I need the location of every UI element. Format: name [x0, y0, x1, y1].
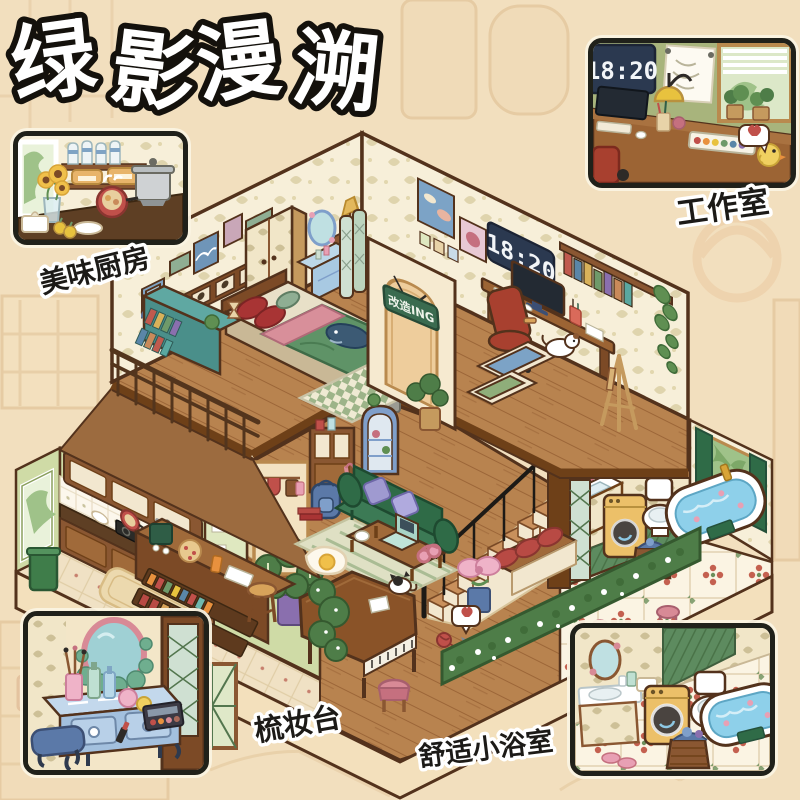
bathroom-label-text: 舒适小浴室 — [417, 725, 555, 773]
inset-steamer-pot — [132, 158, 174, 206]
inset-tissue-box — [22, 212, 48, 232]
studio-label-text: 工作室 — [674, 184, 771, 233]
inset-powder-pink — [119, 689, 137, 707]
bathroom-label: 舒适小浴室 — [396, 720, 576, 778]
bathroom-callout-panel — [570, 623, 775, 776]
bathroom-callout-art — [575, 628, 770, 771]
kitchen-label-text: 美味厨房 — [36, 241, 153, 300]
inset-palette — [143, 701, 184, 730]
studio-callout-art: 18:20 — [593, 43, 791, 183]
inset-clock-time: 18:20 — [593, 57, 658, 85]
inset-clock: 18:20 — [593, 45, 658, 93]
inset-plate — [74, 222, 102, 234]
inset-window — [719, 45, 791, 121]
vanity-label-text: 梳妆台 — [252, 700, 344, 749]
egg-rug — [306, 547, 346, 574]
kitchen-callout-panel — [13, 131, 188, 245]
trash-bin — [27, 548, 60, 590]
studio-label: 工作室 — [648, 178, 798, 238]
kitchen-callout-art — [18, 136, 183, 240]
vanity-callout-art — [28, 616, 204, 770]
kitchen-label: 美味厨房 — [10, 238, 180, 302]
title: 绿影漫溯 — [6, 6, 416, 124]
title-text: 绿影漫溯 — [5, 6, 392, 127]
vanity-callout-panel — [23, 611, 209, 775]
studio-callout-panel: 18:20 — [588, 38, 796, 188]
inset-slipper — [602, 753, 620, 763]
kitchen-window — [22, 471, 56, 560]
vanity-label: 梳妆台 — [228, 696, 368, 754]
folding-screen — [340, 210, 366, 298]
